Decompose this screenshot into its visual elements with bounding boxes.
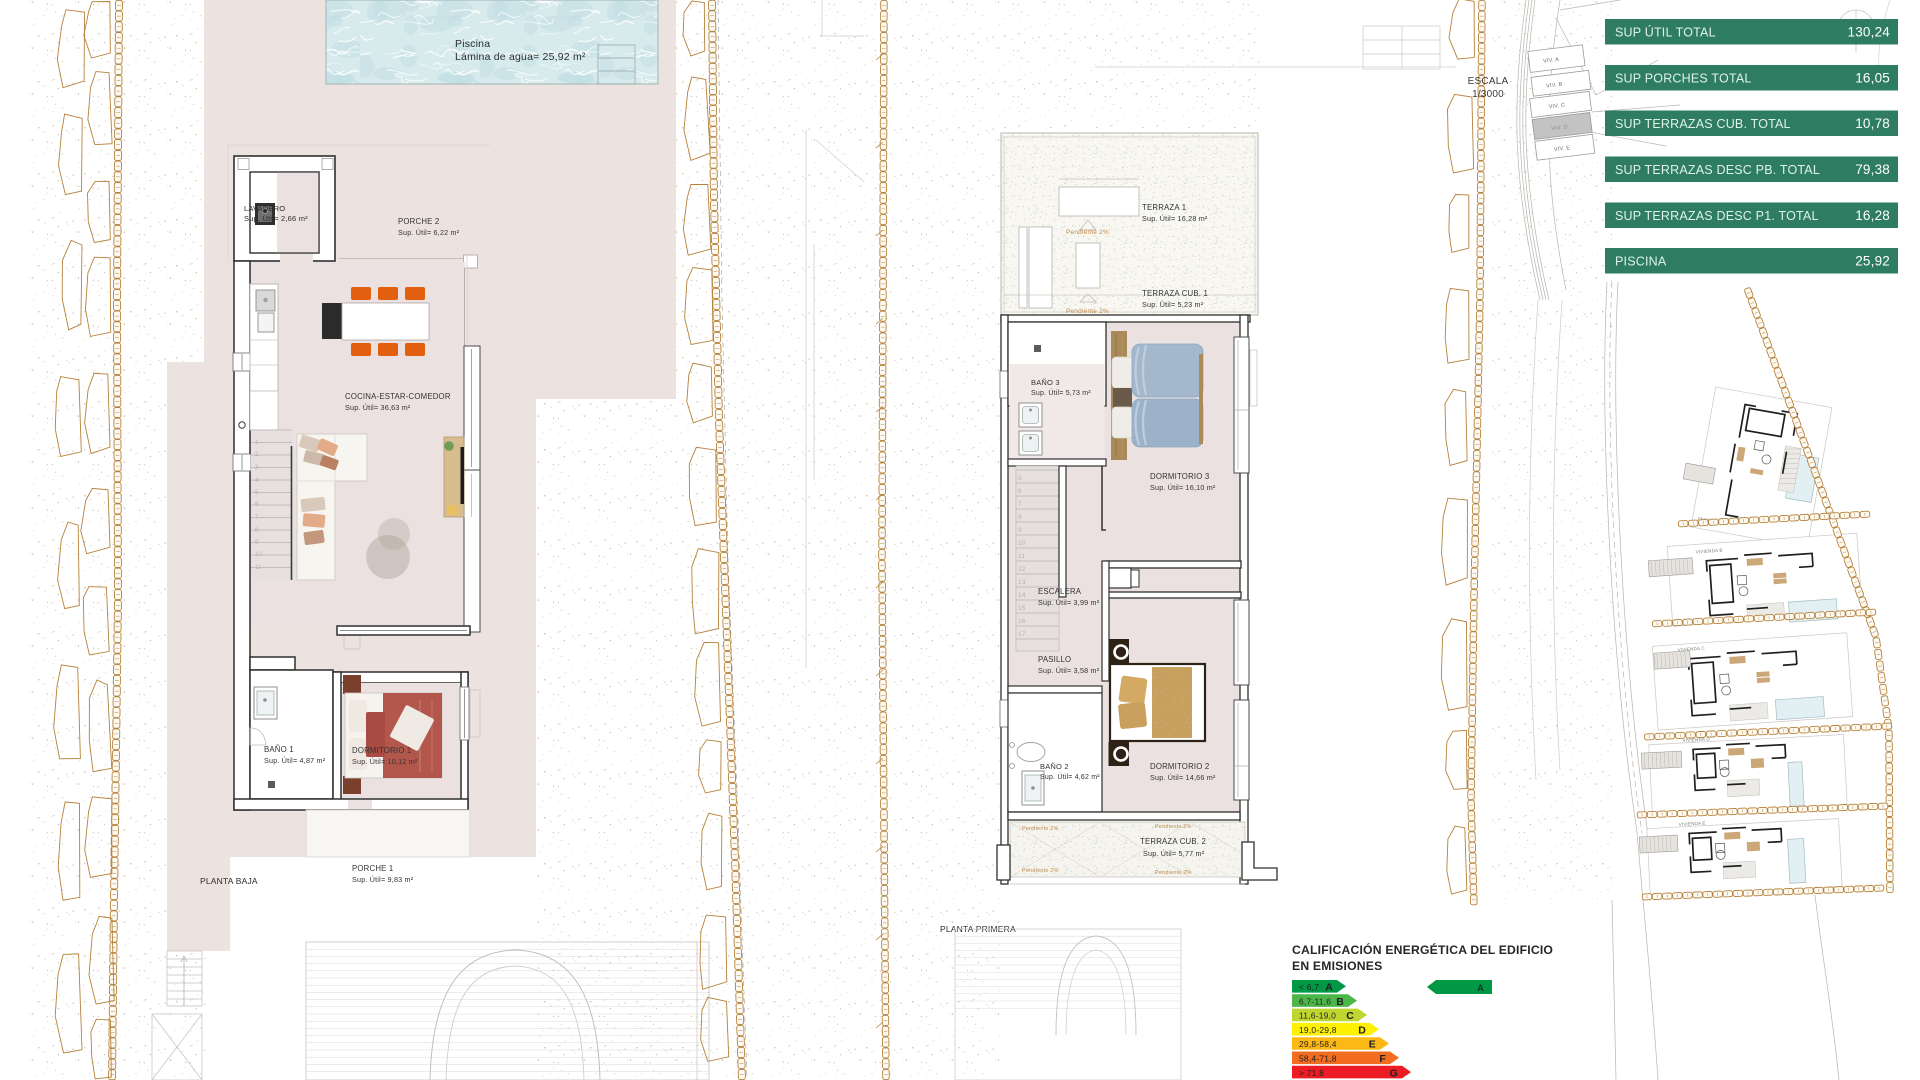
- svg-text:8: 8: [1018, 514, 1022, 521]
- svg-text:2: 2: [255, 452, 259, 458]
- svg-text:DORMITORIO 3: DORMITORIO 3: [1150, 472, 1209, 481]
- svg-text:CALIFICACIÓN ENERGÉTICA DEL ED: CALIFICACIÓN ENERGÉTICA DEL EDIFICIO: [1292, 942, 1553, 957]
- svg-text:Pendiente 2%: Pendiente 2%: [1022, 868, 1059, 874]
- svg-text:5: 5: [1018, 475, 1022, 482]
- svg-text:Pendiente 2%: Pendiente 2%: [1155, 824, 1192, 830]
- svg-text:D: D: [1358, 1024, 1366, 1036]
- svg-text:< 6,7: < 6,7: [1299, 982, 1319, 992]
- svg-text:PLANTA BAJA: PLANTA BAJA: [200, 876, 258, 886]
- svg-text:17: 17: [1018, 631, 1026, 638]
- svg-text:SUP TERRAZAS DESC P1. TOTAL: SUP TERRAZAS DESC P1. TOTAL: [1615, 209, 1819, 223]
- svg-text:Piscina: Piscina: [455, 38, 490, 50]
- svg-text:Sup. Útil= 5,77 m²: Sup. Útil= 5,77 m²: [1143, 849, 1205, 858]
- svg-text:PASILLO: PASILLO: [1038, 655, 1071, 664]
- svg-text:6: 6: [255, 502, 259, 508]
- svg-text:> 71,8: > 71,8: [1299, 1068, 1324, 1078]
- svg-text:16: 16: [1018, 618, 1026, 625]
- svg-text:58,4-71,8: 58,4-71,8: [1299, 1054, 1337, 1064]
- svg-text:TERRAZA 1: TERRAZA 1: [1142, 203, 1186, 212]
- svg-text:8: 8: [255, 528, 259, 534]
- svg-text:Pendiente 2%: Pendiente 2%: [1155, 870, 1192, 876]
- svg-text:SUP TERRAZAS CUB. TOTAL: SUP TERRAZAS CUB. TOTAL: [1615, 117, 1791, 131]
- svg-text:Pendiente 2%: Pendiente 2%: [1022, 826, 1059, 832]
- svg-text:ESCALERA: ESCALERA: [1038, 587, 1082, 596]
- svg-text:1: 1: [255, 440, 259, 446]
- svg-text:12: 12: [1018, 566, 1026, 573]
- svg-text:Sup. Útil= 4,87 m²: Sup. Útil= 4,87 m²: [264, 756, 326, 765]
- svg-text:Sup. Útil= 5,23 m²: Sup. Útil= 5,23 m²: [1142, 300, 1204, 309]
- svg-text:TERRAZA CUB. 2: TERRAZA CUB. 2: [1140, 837, 1206, 846]
- svg-text:SUP TERRAZAS DESC PB. TOTAL: SUP TERRAZAS DESC PB. TOTAL: [1615, 163, 1820, 177]
- svg-text:Sup. Útil= 5,73 m²: Sup. Útil= 5,73 m²: [1031, 388, 1091, 397]
- svg-text:Sup. Útil= 4,62 m²: Sup. Útil= 4,62 m²: [1040, 772, 1100, 781]
- svg-text:BAÑO 2: BAÑO 2: [1040, 762, 1069, 771]
- svg-text:3: 3: [255, 465, 259, 471]
- svg-text:11: 11: [255, 565, 262, 571]
- svg-text:Sup. Útil= 3,58 m²: Sup. Útil= 3,58 m²: [1038, 666, 1100, 675]
- svg-text:6: 6: [1018, 488, 1022, 495]
- svg-text:7: 7: [1018, 501, 1022, 508]
- svg-text:E: E: [1369, 1039, 1376, 1051]
- svg-text:Sup. Útil= 16,10 m²: Sup. Útil= 16,10 m²: [1150, 483, 1216, 492]
- svg-text:5: 5: [255, 490, 259, 496]
- svg-text:9: 9: [1018, 527, 1022, 534]
- svg-text:TERRAZA CUB. 1: TERRAZA CUB. 1: [1142, 289, 1208, 298]
- svg-text:Sup. Útil= 36,63 m²: Sup. Útil= 36,63 m²: [345, 403, 411, 412]
- svg-text:DORMITORIO 2: DORMITORIO 2: [1150, 762, 1209, 771]
- svg-text:ESCALA: ESCALA: [1468, 76, 1509, 87]
- svg-text:Sup. Útil= 2,66 m²: Sup. Útil= 2,66 m²: [244, 214, 308, 223]
- svg-text:10: 10: [1018, 540, 1026, 547]
- svg-text:25,92: 25,92: [1855, 254, 1890, 269]
- svg-text:15: 15: [1018, 605, 1026, 612]
- svg-text:F: F: [1379, 1053, 1386, 1065]
- svg-text:Pendiente 2%: Pendiente 2%: [1066, 229, 1109, 236]
- svg-text:A: A: [1477, 983, 1484, 993]
- svg-text:9: 9: [255, 540, 259, 546]
- svg-text:7: 7: [255, 515, 259, 521]
- svg-text:Lámina de agua= 25,92 m²: Lámina de agua= 25,92 m²: [455, 51, 586, 63]
- svg-text:13: 13: [1018, 579, 1026, 586]
- svg-text:COCINA-ESTAR-COMEDOR: COCINA-ESTAR-COMEDOR: [345, 392, 451, 401]
- svg-text:DORMITORIO 1: DORMITORIO 1: [352, 746, 411, 755]
- svg-text:SUP PORCHES TOTAL: SUP PORCHES TOTAL: [1615, 72, 1752, 86]
- svg-text:PORCHE 1: PORCHE 1: [352, 864, 393, 873]
- svg-text:11,6-19,0: 11,6-19,0: [1299, 1011, 1336, 1021]
- svg-text:Pendiente 2%: Pendiente 2%: [1066, 308, 1109, 315]
- svg-text:BAÑO 3: BAÑO 3: [1031, 378, 1060, 387]
- svg-text:C: C: [1346, 1010, 1354, 1022]
- svg-text:79,38: 79,38: [1855, 162, 1890, 177]
- svg-text:Sup. Útil= 6,22 m²: Sup. Útil= 6,22 m²: [398, 228, 460, 237]
- svg-text:EN EMISIONES: EN EMISIONES: [1292, 959, 1382, 973]
- svg-text:16,05: 16,05: [1855, 71, 1890, 86]
- svg-text:130,24: 130,24: [1848, 25, 1891, 40]
- svg-text:BAÑO 1: BAÑO 1: [264, 745, 294, 754]
- svg-text:6,7-11,6: 6,7-11,6: [1299, 996, 1331, 1006]
- svg-text:Sup. Útil= 10,12 m²: Sup. Útil= 10,12 m²: [352, 757, 418, 766]
- svg-text:Sup. Útil= 16,28 m²: Sup. Útil= 16,28 m²: [1142, 214, 1208, 223]
- svg-text:4: 4: [255, 478, 259, 484]
- svg-text:Sup. Útil= 3,99 m²: Sup. Útil= 3,99 m²: [1038, 598, 1100, 607]
- svg-text:B: B: [1336, 996, 1344, 1008]
- svg-text:14: 14: [1018, 592, 1026, 599]
- svg-text:LAVADERO: LAVADERO: [244, 204, 285, 213]
- svg-text:PISCINA: PISCINA: [1615, 255, 1667, 269]
- svg-text:PORCHE 2: PORCHE 2: [398, 217, 439, 226]
- svg-text:29,8-58,4: 29,8-58,4: [1299, 1039, 1337, 1049]
- svg-text:G: G: [1390, 1067, 1398, 1079]
- svg-text:16,28: 16,28: [1855, 208, 1890, 223]
- svg-text:11: 11: [1018, 553, 1025, 560]
- svg-text:SUP ÚTIL TOTAL: SUP ÚTIL TOTAL: [1615, 25, 1716, 40]
- svg-text:A: A: [1325, 982, 1333, 994]
- svg-text:Sup. Útil= 9,83 m²: Sup. Útil= 9,83 m²: [352, 875, 414, 884]
- svg-text:1/3000: 1/3000: [1472, 89, 1504, 100]
- svg-text:10,78: 10,78: [1855, 116, 1890, 131]
- svg-text:10: 10: [255, 552, 263, 558]
- svg-text:19,0-29,8: 19,0-29,8: [1299, 1025, 1337, 1035]
- svg-text:Sup. Útil= 14,66 m²: Sup. Útil= 14,66 m²: [1150, 773, 1216, 782]
